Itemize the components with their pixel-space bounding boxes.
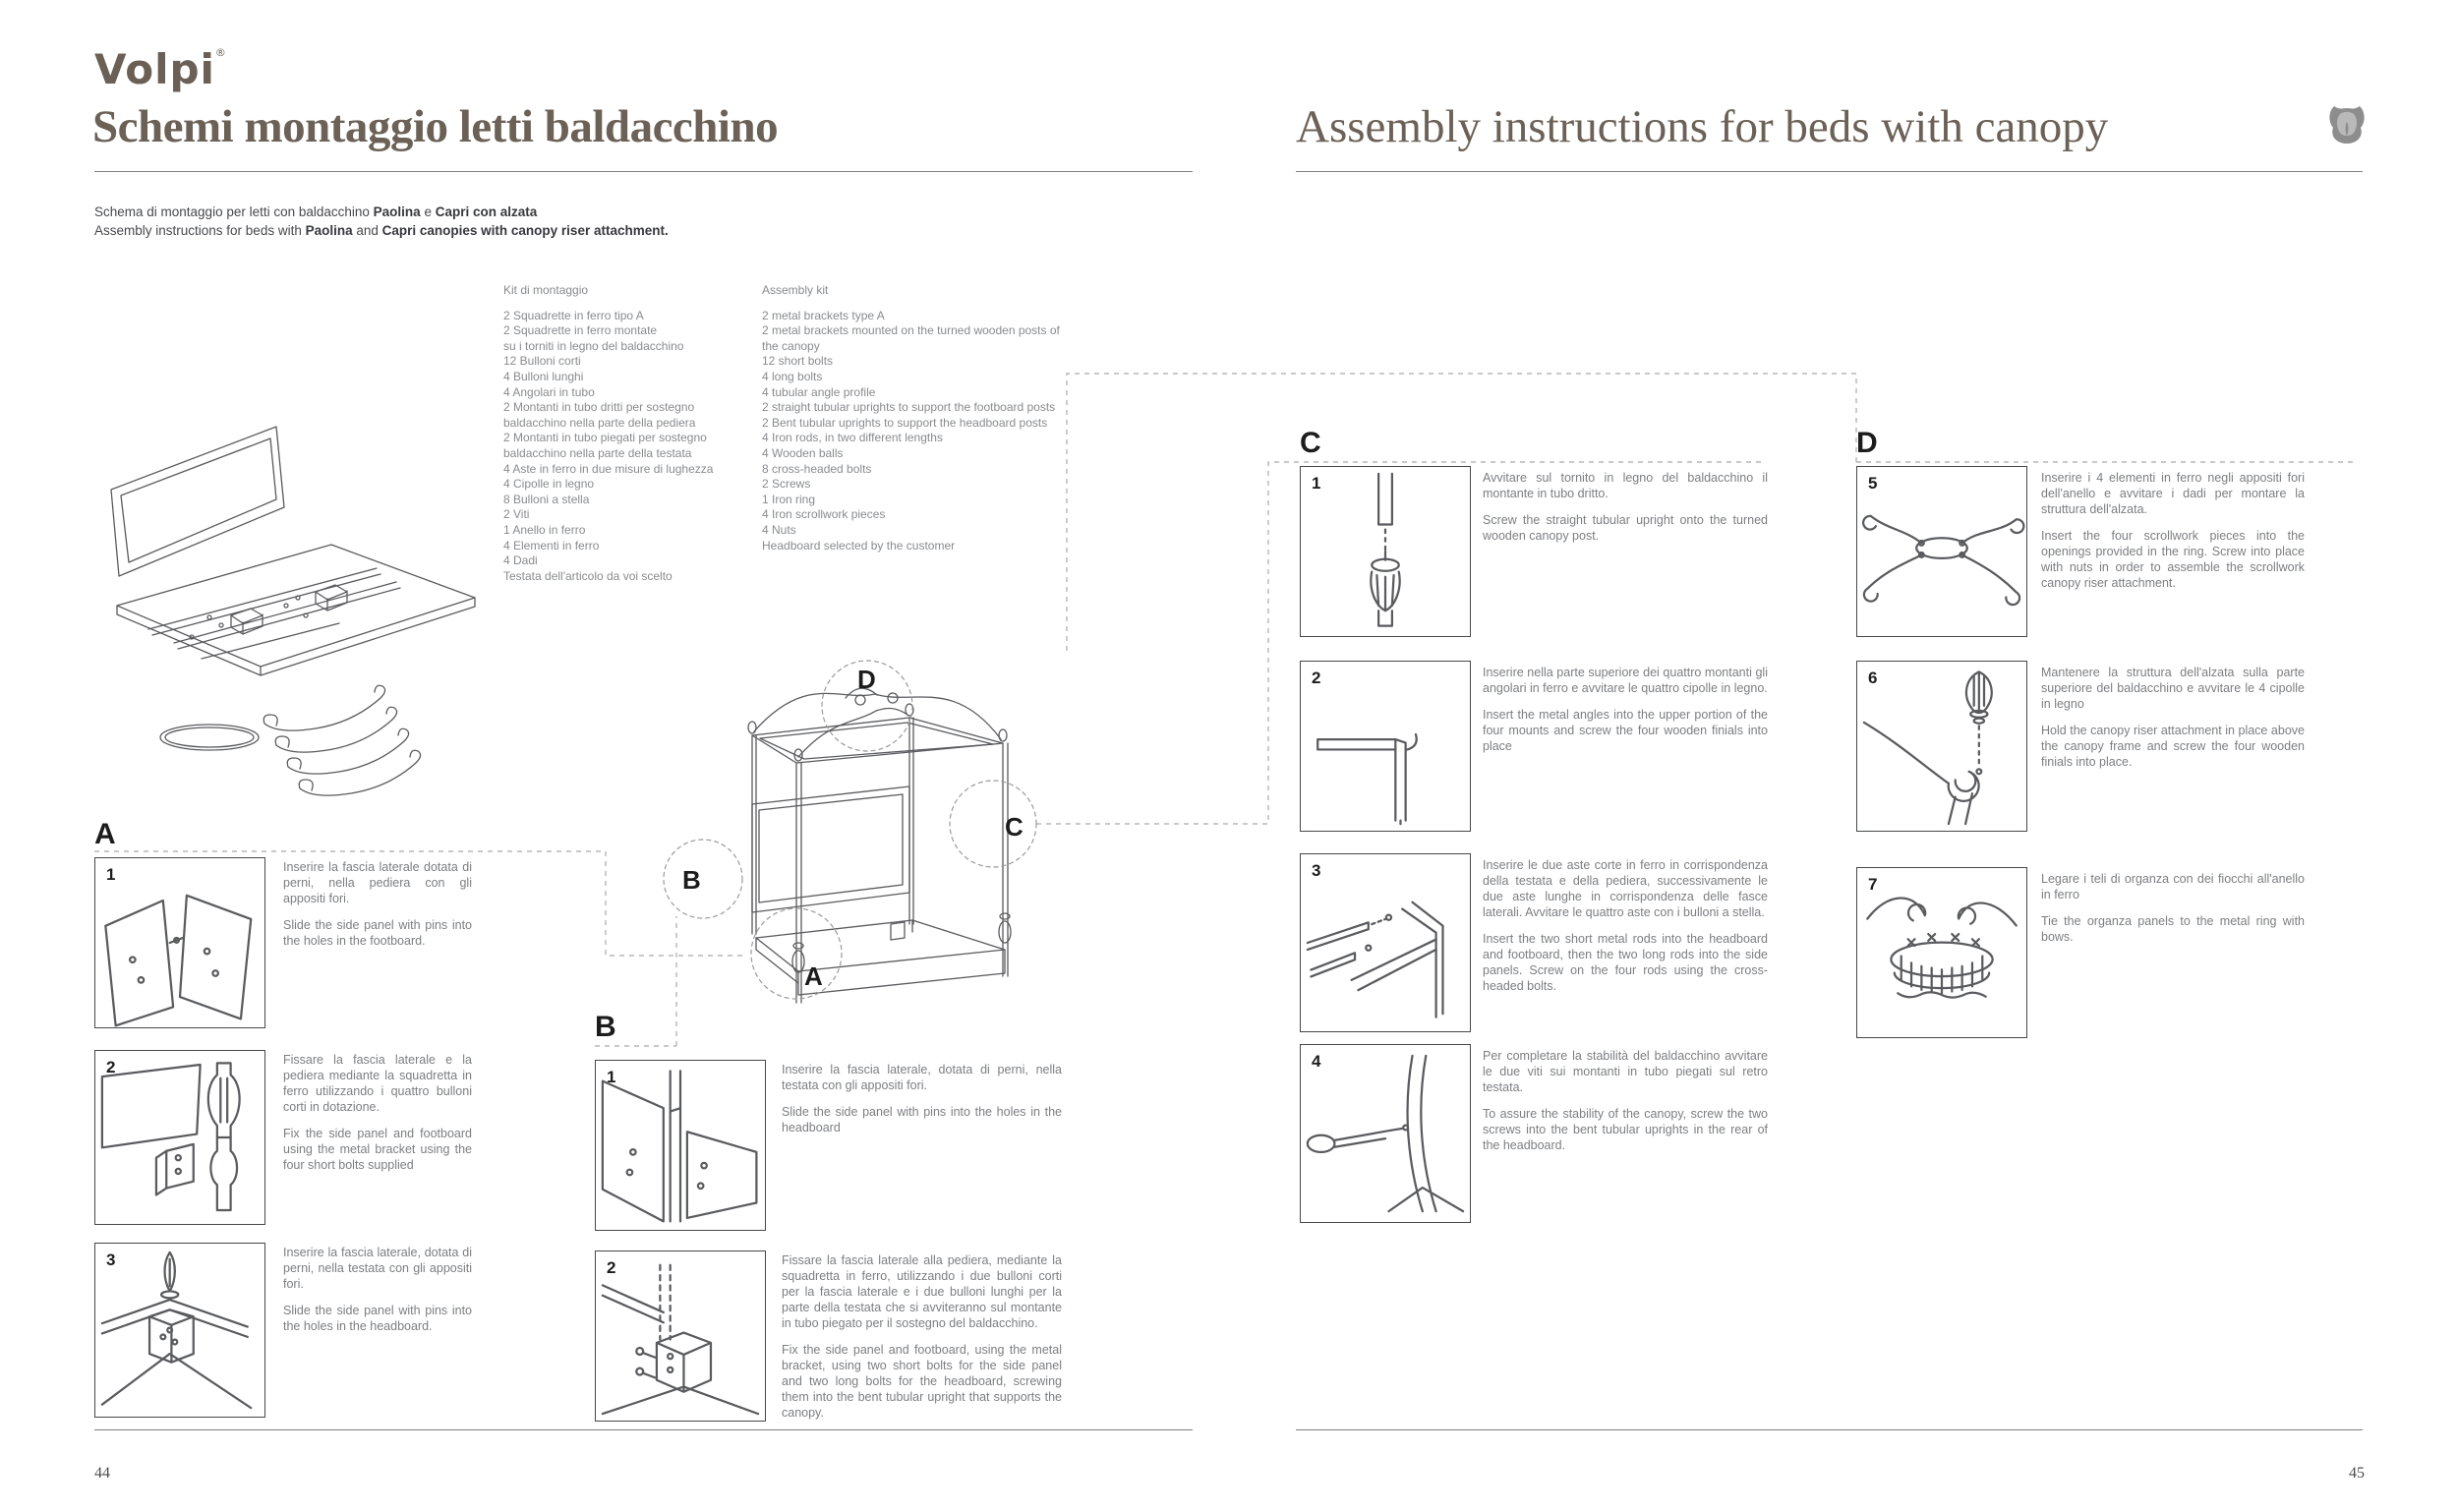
- step-box-a2: 2: [94, 1050, 265, 1225]
- kit-en-line: Headboard selected by the customer: [762, 539, 1060, 554]
- step-text-en: Slide the side panel with pins into the …: [283, 917, 472, 949]
- right-footer-rule: [1296, 1429, 2363, 1430]
- kit-it-line: 1 Anello in ferro: [503, 523, 713, 539]
- kit-it-line: 2 Squadrette in ferro tipo A: [503, 309, 713, 324]
- step-text-en: Tie the organza panels to the metal ring…: [2041, 913, 2305, 945]
- step-text-it: Per completare la stabilità del baldacch…: [1483, 1048, 1768, 1095]
- kit-it-line: su i torniti in legno del baldacchino: [503, 339, 713, 355]
- step-number: 2: [1312, 669, 1320, 688]
- left-title-rule: [94, 171, 1193, 172]
- footboard-panel-drawing: [95, 858, 264, 1027]
- kit-it-line: 4 Aste in ferro in due misure di lughezz…: [503, 462, 713, 478]
- kit-en-line: 4 Iron scrollwork pieces: [762, 507, 1060, 523]
- scrollwork-piece: [263, 685, 384, 730]
- step-text-it: Fissare la fascia laterale e la pediera …: [283, 1052, 472, 1115]
- corner-bracket-drawing: [95, 1244, 264, 1417]
- step-text-en: To assure the stability of the canopy, s…: [1483, 1106, 1768, 1153]
- step-box-c2: 2: [1300, 661, 1471, 832]
- subtitle-en-pre: Assembly instructions for beds with: [94, 223, 306, 238]
- step-number: 6: [1868, 669, 1877, 688]
- kit-it-line: 2 Viti: [503, 507, 713, 523]
- kit-it-title: Kit di montaggio: [503, 283, 713, 299]
- bed-label-a: A: [804, 961, 823, 991]
- kit-en-line: 8 cross-headed bolts: [762, 462, 1060, 478]
- kit-it-line: baldacchino nella parte della testata: [503, 446, 713, 462]
- step-text-it: Fissare la fascia laterale alla pediera,…: [782, 1252, 1062, 1331]
- canopy-bed-drawing: D B C A: [659, 637, 1091, 1030]
- iron-rods-drawing: [1301, 854, 1470, 1031]
- step-text-it: Inserire la fascia laterale, dotata di p…: [782, 1062, 1062, 1093]
- kit-en-line: 4 Nuts: [762, 523, 1060, 539]
- kit-list-italian: Kit di montaggio 2 Squadrette in ferro t…: [503, 283, 713, 584]
- spread-subtitle: Schema di montaggio per letti con baldac…: [94, 203, 669, 240]
- finial-scroll-drawing: [1857, 662, 2026, 831]
- step-text-c1: Avvitare sul tornito in legno del baldac…: [1483, 470, 1768, 554]
- volpi-logo-text: Volpi: [94, 45, 215, 93]
- step-number: 2: [607, 1258, 615, 1278]
- post-bracket-drawing: [95, 1051, 264, 1224]
- subtitle-line-en: Assembly instructions for beds with Paol…: [94, 221, 669, 240]
- kit-en-line: the canopy: [762, 339, 1060, 355]
- kit-en-line: 2 metal brackets mounted on the turned w…: [762, 323, 1060, 339]
- step-text-it: Inserire nella parte superiore dei quatt…: [1483, 665, 1768, 696]
- step-text-en: Slide the side panel with pins into the …: [283, 1303, 472, 1334]
- kit-en-line: 2 Bent tubular uprights to support the h…: [762, 416, 1060, 432]
- kit-it-line: baldacchino nella parte della pediera: [503, 416, 713, 432]
- left-page-number: 44: [94, 1465, 110, 1483]
- step-text-a1: Inserire la fascia laterale dotata di pe…: [283, 859, 472, 960]
- step-box-a1: 1: [94, 857, 265, 1028]
- angle-profile-drawing: [1301, 662, 1470, 831]
- step-text-c4: Per completare la stabilità del baldacch…: [1483, 1048, 1768, 1164]
- subtitle-en-mid: and: [353, 223, 382, 238]
- step-number: 4: [1312, 1052, 1320, 1072]
- step-box-c3: 3: [1300, 853, 1471, 1032]
- volpi-fox-emblem-icon: [2326, 102, 2368, 145]
- kit-en-line: 2 metal brackets type A: [762, 309, 1060, 324]
- step-number: 1: [106, 865, 115, 885]
- kit-it-line: 4 Bulloni lunghi: [503, 370, 713, 385]
- subtitle-it-model-1: Paolina: [374, 204, 421, 219]
- step-box-a3: 3: [94, 1243, 265, 1418]
- kit-en-line: 4 tubular angle profile: [762, 385, 1060, 401]
- step-number: 3: [106, 1250, 115, 1270]
- exploded-parts-drawing: [84, 413, 506, 806]
- step-text-it: Inserire la fascia laterale dotata di pe…: [283, 859, 472, 906]
- step-text-en: Insert the two short metal rods into the…: [1483, 931, 1768, 994]
- kit-it-line: Testata dell'articolo da voi scelto: [503, 569, 713, 585]
- kit-it-line: 2 Montanti in tubo dritti per sostegno: [503, 400, 713, 416]
- step-text-en: Insert the metal angles into the upper p…: [1483, 707, 1768, 754]
- screwdriver-upright-drawing: [1301, 1045, 1470, 1222]
- section-label-b: B: [595, 1013, 616, 1042]
- kit-en-line: 4 Iron rods, in two different lengths: [762, 431, 1060, 446]
- step-text-b2: Fissare la fascia laterale alla pediera,…: [782, 1252, 1062, 1431]
- step-number: 1: [607, 1068, 615, 1087]
- subtitle-line-it: Schema di montaggio per letti con baldac…: [94, 203, 669, 221]
- kit-it-line: 4 Angolari in tubo: [503, 385, 713, 401]
- headboard-corner-drawing: [596, 1061, 765, 1230]
- catalog-spread: Volpi® Schemi montaggio letti baldacchin…: [0, 0, 2457, 1512]
- step-text-it: Inserire le due aste corte in ferro in c…: [1483, 857, 1768, 920]
- bed-label-d: D: [857, 665, 876, 694]
- step-text-it: Inserire la fascia laterale, dotata di p…: [283, 1245, 472, 1292]
- step-text-en: Screw the straight tubular upright onto …: [1483, 512, 1768, 544]
- step-box-d6: 6: [1856, 661, 2027, 832]
- section-label-d: D: [1856, 429, 1878, 458]
- kit-en-line: 2 Screws: [762, 477, 1060, 493]
- step-text-it: Avvitare sul tornito in legno del baldac…: [1483, 470, 1768, 501]
- left-page-title: Schemi montaggio letti baldacchino: [92, 100, 778, 153]
- step-text-en: Insert the four scrollwork pieces into t…: [2041, 528, 2305, 591]
- subtitle-it-pre: Schema di montaggio per letti con baldac…: [94, 204, 374, 219]
- kit-it-line: 4 Dadi: [503, 553, 713, 569]
- step-text-c2: Inserire nella parte superiore dei quatt…: [1483, 665, 1768, 765]
- step-text-b1: Inserire la fascia laterale, dotata di p…: [782, 1062, 1062, 1146]
- step-box-b1: 1: [595, 1060, 766, 1231]
- step-number: 1: [1312, 474, 1320, 494]
- step-box-c4: 4: [1300, 1044, 1471, 1223]
- step-text-c3: Inserire le due aste corte in ferro in c…: [1483, 857, 1768, 1005]
- left-footer-rule: [94, 1429, 1193, 1430]
- kit-en-line: 4 Wooden balls: [762, 446, 1060, 462]
- subtitle-en-model-1: Paolina: [306, 223, 353, 238]
- step-text-en: Hold the canopy riser attachment in plac…: [2041, 723, 2305, 770]
- section-label-a: A: [94, 820, 116, 849]
- kit-en-line: 4 long bolts: [762, 370, 1060, 385]
- step-box-b2: 2: [595, 1250, 766, 1422]
- step-box-c1: 1: [1300, 466, 1471, 637]
- registered-mark: ®: [215, 46, 227, 59]
- step-text-en: Fix the side panel and footboard, using …: [782, 1342, 1062, 1421]
- step-text-en: Slide the side panel with pins into the …: [782, 1104, 1062, 1135]
- kit-it-line: 12 Bulloni corti: [503, 354, 713, 370]
- subtitle-it-mid: e: [421, 204, 436, 219]
- kit-en-line: 2 straight tubular uprights to support t…: [762, 400, 1060, 416]
- step-number: 7: [1868, 875, 1877, 895]
- step-text-it: Legare i teli di organza con dei fiocchi…: [2041, 871, 2305, 902]
- kit-it-line: 8 Bulloni a stella: [503, 493, 713, 508]
- subtitle-it-model-2: Capri con alzata: [436, 204, 538, 219]
- kit-it-line: 2 Squadrette in ferro montate: [503, 323, 713, 339]
- step-text-d5: Inserire i 4 elementi in ferro negli app…: [2041, 470, 2305, 602]
- bed-label-b: B: [682, 865, 701, 895]
- subtitle-en-model-2: Capri canopies with canopy riser attachm…: [382, 223, 669, 238]
- bracket-bolts-drawing: [596, 1251, 765, 1421]
- organza-ring-drawing: [1857, 868, 2026, 1037]
- kit-en-line: 12 short bolts: [762, 354, 1060, 370]
- kit-en-line: 1 Iron ring: [762, 493, 1060, 508]
- section-label-c: C: [1300, 429, 1321, 458]
- step-text-en: Fix the side panel and footboard using t…: [283, 1126, 472, 1173]
- step-number: 5: [1868, 474, 1877, 494]
- right-title-rule: [1296, 171, 2363, 172]
- step-text-it: Inserire i 4 elementi in ferro negli app…: [2041, 470, 2305, 517]
- kit-it-line: 4 Elementi in ferro: [503, 539, 713, 554]
- step-number: 2: [106, 1058, 115, 1077]
- kit-it-line: 2 Montanti in tubo piegati per sostegno: [503, 431, 713, 446]
- step-box-d5: 5: [1856, 466, 2027, 637]
- kit-it-line: 4 Cipolle in legno: [503, 477, 713, 493]
- step-text-a3: Inserire la fascia laterale, dotata di p…: [283, 1245, 472, 1345]
- right-page-number: 45: [2340, 1465, 2365, 1483]
- step-text-it: Mantenere la struttura dell'alzata sulla…: [2041, 665, 2305, 712]
- step-text-a2: Fissare la fascia laterale e la pediera …: [283, 1052, 472, 1184]
- kit-list-english: Assembly kit 2 metal brackets type A 2 m…: [762, 283, 1060, 553]
- volpi-logo: Volpi®: [94, 45, 227, 93]
- upright-post-drawing: [1301, 467, 1470, 636]
- step-text-d6: Mantenere la struttura dell'alzata sulla…: [2041, 665, 2305, 781]
- kit-en-title: Assembly kit: [762, 283, 1060, 299]
- step-box-d7: 7: [1856, 867, 2027, 1038]
- ring-scrollwork-drawing: [1857, 467, 2026, 636]
- bed-label-c: C: [1005, 812, 1024, 842]
- step-text-d7: Legare i teli di organza con dei fiocchi…: [2041, 871, 2305, 956]
- right-page-title: Assembly instructions for beds with cano…: [1296, 100, 2108, 153]
- step-number: 3: [1312, 861, 1320, 881]
